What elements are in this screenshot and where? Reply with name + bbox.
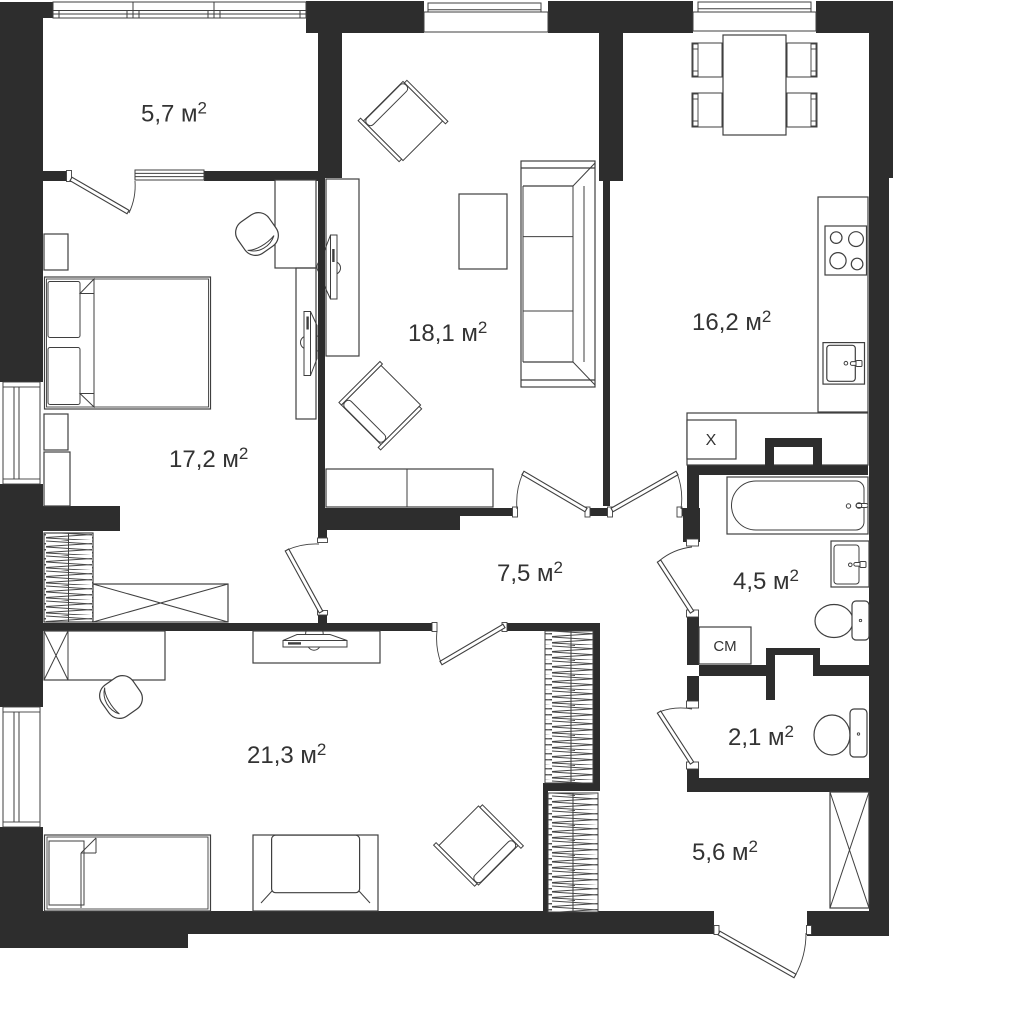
svg-text:5,7 м2: 5,7 м2 [141,99,207,128]
svg-text:2,1 м2: 2,1 м2 [728,722,794,751]
svg-text:5,6 м2: 5,6 м2 [692,837,758,866]
svg-text:7,5 м2: 7,5 м2 [497,558,563,587]
svg-text:16,2 м2: 16,2 м2 [692,307,771,336]
svg-text:18,1 м2: 18,1 м2 [408,318,487,347]
svg-text:21,3 м2: 21,3 м2 [247,740,326,769]
svg-text:4,5 м2: 4,5 м2 [733,566,799,595]
svg-text:X: X [706,432,717,449]
svg-text:17,2 м2: 17,2 м2 [169,444,248,473]
svg-text:СМ: СМ [713,638,736,655]
